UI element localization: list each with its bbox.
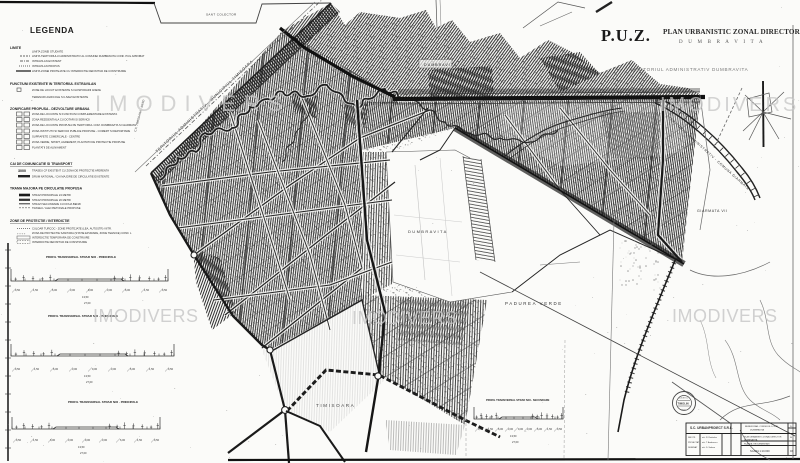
svg-text:CULOAR TURCOC - ZONE PROTEJATE: CULOAR TURCOC - ZONE PROTEJATE (LEA, AUT… <box>32 227 112 231</box>
svg-text:DUMBRAVITA: DUMBRAVITA <box>750 429 765 432</box>
svg-text:ZONA DE PROTECTIE SANITARA (ST: ZONA DE PROTECTIE SANITARA (STATIE EPURA… <box>32 231 132 235</box>
svg-text:LEGENDA: LEGENDA <box>30 26 74 35</box>
svg-text:ZONA INSTITUTII SI SERVICII PU: ZONA INSTITUTII SI SERVICII PUBLICE PROP… <box>32 129 130 133</box>
svg-text:13,50: 13,50 <box>78 445 85 449</box>
svg-text:13,50: 13,50 <box>82 295 89 299</box>
svg-text:ZONIFICARE PROPUSA - DEZVOLTAR: ZONIFICARE PROPUSA - DEZVOLTARE URBANA <box>10 107 90 111</box>
svg-text:CAI DE COMUNICATIE SI TRANSPOR: CAI DE COMUNICATIE SI TRANSPORT <box>10 162 73 166</box>
svg-text:STRAZI SECUNDARE CU DOUA BENZI: STRAZI SECUNDARE CU DOUA BENZI <box>32 202 81 206</box>
svg-text:13,50: 13,50 <box>84 374 91 378</box>
svg-text:IMODIVERS: IMODIVERS <box>352 308 458 328</box>
svg-text:9,00: 9,00 <box>88 288 94 292</box>
svg-text:27,00: 27,00 <box>512 440 519 444</box>
svg-text:SCARA 1:10.000: SCARA 1:10.000 <box>750 449 770 453</box>
svg-text:DUMBRAVITA: DUMBRAVITA <box>408 229 448 234</box>
svg-text:TERITORIUL ADMINISTRATIV DUMBR: TERITORIUL ADMINISTRATIV DUMBRAVITA <box>630 67 749 72</box>
svg-text:ZONA DE LOCUINTE PROPUSA PE TE: ZONA DE LOCUINTE PROPUSA PE TERITORIUL C… <box>32 123 136 127</box>
svg-text:DUMBRAVITA: DUMBRAVITA <box>744 438 758 441</box>
svg-text:DRUM NATIONAL / CAI MAJORE DE: DRUM NATIONAL / CAI MAJORE DE CIRCULATIE… <box>32 175 110 179</box>
svg-text:TIMISOARA: TIMISOARA <box>316 403 355 408</box>
svg-text:ZONE DE LOCUIT EXISTENTE SI GO: ZONE DE LOCUIT EXISTENTE SI GOSPODARII A… <box>32 88 101 92</box>
svg-text:3000: 3000 <box>18 169 26 173</box>
svg-text:27,00: 27,00 <box>80 451 87 455</box>
svg-text:P.U.Z.: P.U.Z. <box>601 26 651 45</box>
svg-text:PROFIL TRANSVERSAL STRAZI NOI: PROFIL TRANSVERSAL STRAZI NOI - PRINCIPA… <box>46 255 116 259</box>
svg-text:PLAN URBANISTIC ZONAL DIRECTOR: PLAN URBANISTIC ZONAL DIRECTOR <box>744 436 782 439</box>
svg-text:TERENURI AGRICOLE SI LIVEZI EX: TERENURI AGRICOLE SI LIVEZI EXISTENTE <box>32 95 88 99</box>
svg-text:SUPRAFETE COMERCIALE - CENTRE: SUPRAFETE COMERCIALE - CENTRE <box>32 135 80 139</box>
svg-text:6,00: 6,00 <box>120 438 126 442</box>
svg-text:27,00: 27,00 <box>84 301 91 305</box>
svg-text:PROIECTAT: PROIECTAT <box>688 441 700 444</box>
svg-text:S.C. URBANPROIECT S.R.L.: S.C. URBANPROIECT S.R.L. <box>690 426 733 430</box>
svg-text:arh. D. Serban: arh. D. Serban <box>702 447 715 449</box>
svg-text:TIMOLIN: TIMOLIN <box>678 401 689 405</box>
svg-text:SEF PR.: SEF PR. <box>688 437 696 439</box>
svg-text:STRAZI PRINCIPALE 24 METRI: STRAZI PRINCIPALE 24 METRI <box>32 193 71 197</box>
svg-text:GIARMATA VII: GIARMATA VII <box>697 209 728 213</box>
svg-text:PLANSA: REGLEMENTARI: PLANSA: REGLEMENTARI <box>744 443 770 446</box>
svg-text:BENEFICIAR: CONSILIUL LOCAL: BENEFICIAR: CONSILIUL LOCAL <box>745 425 779 428</box>
svg-text:PLAN URBANISTIC ZONAL DIRECTOR: PLAN URBANISTIC ZONAL DIRECTOR <box>663 28 800 36</box>
svg-text:LIMITE: LIMITE <box>10 46 22 50</box>
svg-text:STRAZI PRINCIPALE 20 METRI: STRAZI PRINCIPALE 20 METRI <box>32 198 71 202</box>
svg-text:PROFIL TRANSVERSAL STRAZI NOI: PROFIL TRANSVERSAL STRAZI NOI - PRINCIPA… <box>68 400 138 404</box>
svg-text:D U M B R A V I T A: D U M B R A V I T A <box>679 40 765 45</box>
svg-text:ZONA VERDE, SPORT, AGREMENT, P: ZONA VERDE, SPORT, AGREMENT, PLANTATII D… <box>32 140 125 144</box>
svg-text:JUDETUL: JUDETUL <box>679 398 689 400</box>
svg-text:ZONE DE PROTECTIE / INTERDICTI: ZONE DE PROTECTIE / INTERDICTIE <box>10 219 70 223</box>
svg-text:DUMBRAVITA: DUMBRAVITA <box>424 63 457 67</box>
svg-text:IMODIVERS: IMODIVERS <box>95 91 290 116</box>
svg-text:DESENAT: DESENAT <box>688 446 698 449</box>
svg-text:TIMIS: TIMIS <box>681 410 687 412</box>
svg-text:PLANTATII DE ALINIAMENT: PLANTATII DE ALINIAMENT <box>32 146 67 150</box>
svg-text:6,00: 6,00 <box>50 438 56 442</box>
svg-text:IMODIVERS: IMODIVERS <box>672 306 778 326</box>
svg-text:ZONA REZIDENTIALA CU DOTARI SI: ZONA REZIDENTIALA CU DOTARI SI SERVICII <box>32 118 90 122</box>
svg-text:IMODIVERS: IMODIVERS <box>93 306 199 326</box>
svg-text:arh. T. Andreescu: arh. T. Andreescu <box>702 441 718 444</box>
svg-text:TRASEU / ALEI PIETONALE PROPUS: TRASEU / ALEI PIETONALE PROPUSE <box>32 206 81 210</box>
svg-text:INTRAVILAN PROPUS: INTRAVILAN PROPUS <box>32 64 60 68</box>
svg-text:IMODIVERS: IMODIVERS <box>660 94 799 116</box>
svg-text:PADUREA VERDE: PADUREA VERDE <box>505 301 563 306</box>
svg-text:FUNCTIUNI EXISTENTE IN TERITOR: FUNCTIUNI EXISTENTE IN TERITORIUL EXTRAV… <box>10 82 96 86</box>
svg-text:+ + + +: + + + + <box>17 232 26 235</box>
svg-text:LIMITA ZONEI PROTEJATE CU INTE: LIMITA ZONEI PROTEJATE CU INTERDICTIE DE… <box>32 69 126 73</box>
svg-text:PROFIL TRANSVERSAL STRAD NOI -: PROFIL TRANSVERSAL STRAD NOI - SECUNDARE <box>486 398 550 402</box>
svg-text:LIMITA ZONEI STUDIATE: LIMITA ZONEI STUDIATE <box>32 50 63 54</box>
svg-text:INTERDICTIE TEMPORARA DE CONST: INTERDICTIE TEMPORARA DE CONSTRUIRE <box>32 236 90 240</box>
svg-text:9,00: 9,00 <box>518 427 524 431</box>
svg-text:SANT COLECTOR: SANT COLECTOR <box>206 13 237 17</box>
svg-text:INTRAVILAN EXISTENT: INTRAVILAN EXISTENT <box>32 59 62 63</box>
svg-text:LIMITA TERITORIULUI ADMINISTRA: LIMITA TERITORIULUI ADMINISTRATIV AL COM… <box>32 54 145 58</box>
svg-text:9,00: 9,00 <box>92 367 98 371</box>
svg-text:arh. R. Radoslav: arh. R. Radoslav <box>702 437 717 439</box>
svg-text:13,50: 13,50 <box>510 434 517 438</box>
svg-text:TRASEU CF EXISTENT CU ZONA DE: TRASEU CF EXISTENT CU ZONA DE PROTECTIE … <box>32 169 109 173</box>
svg-text:INTERDICTIE DEFINITIVA DE CONS: INTERDICTIE DEFINITIVA DE CONSTRUIRE <box>32 240 87 244</box>
svg-text:TRAMA MAJORA PE CIRCULATIE PRO: TRAMA MAJORA PE CIRCULATIE PROPUSA <box>10 187 83 191</box>
